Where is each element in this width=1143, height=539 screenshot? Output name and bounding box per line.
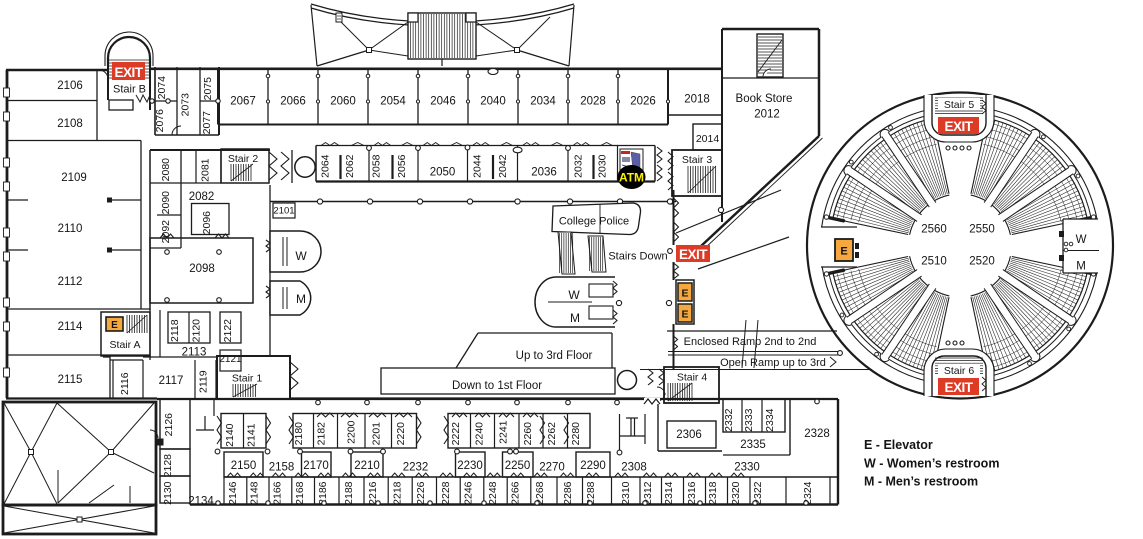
svg-text:2226: 2226 — [415, 481, 427, 505]
svg-text:2036: 2036 — [531, 167, 557, 179]
svg-text:Stair 1: Stair 1 — [232, 373, 263, 385]
svg-text:EXIT: EXIT — [944, 380, 973, 395]
svg-text:2248: 2248 — [487, 481, 499, 505]
svg-text:W: W — [1076, 234, 1087, 246]
svg-text:2073: 2073 — [180, 93, 192, 117]
svg-text:W - Women’s restroom: W - Women’s restroom — [864, 457, 999, 471]
svg-text:2220: 2220 — [395, 422, 407, 446]
svg-text:E: E — [840, 246, 847, 258]
svg-text:2032: 2032 — [573, 154, 585, 178]
svg-text:Stair 4: Stair 4 — [677, 372, 708, 384]
svg-text:E: E — [111, 320, 118, 331]
svg-text:2188: 2188 — [343, 481, 355, 505]
svg-text:2332: 2332 — [723, 408, 735, 432]
svg-text:2550: 2550 — [969, 224, 995, 236]
svg-text:2280: 2280 — [570, 422, 582, 446]
svg-text:2106: 2106 — [57, 80, 83, 92]
svg-text:2290: 2290 — [580, 460, 606, 472]
svg-text:2018: 2018 — [684, 94, 710, 106]
svg-text:2034: 2034 — [530, 96, 556, 108]
svg-text:2075: 2075 — [202, 77, 214, 101]
svg-text:2266: 2266 — [510, 481, 522, 505]
svg-text:2210: 2210 — [354, 460, 380, 472]
svg-text:2112: 2112 — [58, 276, 83, 288]
svg-text:2118: 2118 — [169, 319, 181, 342]
svg-text:E: E — [681, 288, 688, 300]
svg-text:2064: 2064 — [320, 154, 332, 178]
svg-text:2101: 2101 — [273, 206, 294, 217]
svg-text:2134: 2134 — [188, 496, 214, 508]
svg-text:Stairs Down: Stairs Down — [608, 251, 667, 263]
svg-text:Open Ramp up to 3rd: Open Ramp up to 3rd — [720, 357, 826, 369]
svg-text:2141: 2141 — [246, 423, 258, 447]
svg-text:M: M — [296, 292, 306, 306]
svg-text:2108: 2108 — [57, 118, 83, 130]
svg-text:2026: 2026 — [630, 96, 656, 108]
svg-text:2119: 2119 — [198, 370, 210, 393]
svg-text:2056: 2056 — [396, 154, 408, 178]
svg-text:2182: 2182 — [316, 422, 328, 446]
svg-text:2246: 2246 — [463, 481, 475, 505]
svg-text:EXIT: EXIT — [944, 119, 973, 134]
svg-text:2030: 2030 — [597, 154, 609, 178]
svg-text:2098: 2098 — [189, 263, 215, 275]
svg-text:2320: 2320 — [730, 481, 742, 505]
svg-text:M: M — [1076, 261, 1086, 273]
svg-text:2077: 2077 — [201, 111, 213, 135]
svg-text:2201: 2201 — [371, 422, 383, 446]
svg-text:2150: 2150 — [231, 460, 257, 472]
svg-text:2028: 2028 — [580, 96, 606, 108]
svg-text:2046: 2046 — [430, 96, 456, 108]
svg-text:2122: 2122 — [222, 319, 234, 343]
svg-text:2333: 2333 — [743, 408, 755, 432]
svg-text:2054: 2054 — [380, 96, 406, 108]
svg-text:2042: 2042 — [497, 154, 509, 178]
svg-text:2148: 2148 — [249, 481, 261, 505]
svg-text:W: W — [568, 288, 580, 302]
svg-text:2113: 2113 — [182, 347, 207, 359]
svg-text:2560: 2560 — [921, 224, 947, 236]
svg-text:2310: 2310 — [620, 481, 632, 505]
svg-text:2082: 2082 — [189, 191, 215, 203]
svg-text:2334: 2334 — [764, 408, 776, 432]
svg-text:2158: 2158 — [269, 462, 295, 474]
svg-text:2335: 2335 — [740, 439, 766, 451]
svg-text:EXIT: EXIT — [679, 247, 708, 262]
svg-text:2012: 2012 — [754, 109, 780, 121]
svg-text:Up to 3rd Floor: Up to 3rd Floor — [516, 350, 593, 362]
svg-text:2060: 2060 — [330, 96, 356, 108]
svg-text:2260: 2260 — [522, 422, 534, 446]
svg-text:2014: 2014 — [696, 133, 720, 145]
svg-text:2080: 2080 — [160, 158, 172, 182]
svg-text:2040: 2040 — [480, 96, 506, 108]
svg-text:2081: 2081 — [200, 158, 212, 182]
svg-text:2130: 2130 — [162, 481, 174, 505]
svg-text:2117: 2117 — [159, 375, 184, 387]
svg-text:2218: 2218 — [392, 481, 404, 505]
svg-text:2128: 2128 — [162, 454, 174, 478]
svg-text:Stair 3: Stair 3 — [682, 154, 713, 166]
svg-text:2114: 2114 — [58, 321, 83, 333]
svg-text:2228: 2228 — [440, 481, 452, 505]
svg-text:2314: 2314 — [663, 481, 675, 505]
svg-text:2146: 2146 — [227, 481, 239, 505]
svg-text:E: E — [681, 309, 688, 321]
svg-text:EXIT: EXIT — [114, 65, 143, 80]
svg-text:2240: 2240 — [474, 422, 486, 446]
svg-text:2308: 2308 — [621, 462, 647, 474]
svg-text:W: W — [295, 249, 307, 263]
svg-text:2170: 2170 — [303, 460, 329, 472]
svg-text:M - Men’s restroom: M - Men’s restroom — [864, 475, 978, 489]
svg-text:2044: 2044 — [472, 154, 484, 178]
svg-text:2180: 2180 — [293, 422, 305, 446]
svg-text:2241: 2241 — [498, 420, 510, 444]
svg-text:2262: 2262 — [546, 422, 558, 446]
svg-text:2120: 2120 — [191, 319, 203, 343]
svg-text:Down to 1st Floor: Down to 1st Floor — [452, 380, 542, 392]
svg-text:2109: 2109 — [61, 172, 87, 184]
svg-text:2270: 2270 — [539, 462, 565, 474]
svg-text:2200: 2200 — [346, 420, 358, 444]
svg-text:2116: 2116 — [119, 372, 131, 395]
svg-text:Stair B: Stair B — [113, 84, 146, 96]
svg-text:Stair 2: Stair 2 — [228, 153, 259, 165]
svg-text:2074: 2074 — [156, 76, 168, 100]
svg-text:2510: 2510 — [921, 256, 947, 268]
svg-text:2318: 2318 — [707, 481, 719, 505]
svg-text:Book Store: Book Store — [736, 93, 793, 105]
svg-text:Enclosed Ramp 2nd to 2nd: Enclosed Ramp 2nd to 2nd — [684, 336, 817, 348]
svg-text:ATM: ATM — [619, 171, 644, 185]
svg-text:2328: 2328 — [804, 428, 830, 440]
svg-text:2092: 2092 — [160, 220, 172, 244]
svg-text:E - Elevator: E - Elevator — [864, 438, 933, 452]
svg-text:Stair 5: Stair 5 — [944, 99, 975, 111]
svg-text:2096: 2096 — [201, 211, 213, 235]
svg-text:2050: 2050 — [430, 167, 456, 179]
svg-text:2168: 2168 — [294, 481, 306, 505]
svg-text:2222: 2222 — [450, 422, 462, 446]
svg-text:2058: 2058 — [371, 154, 383, 178]
svg-text:2110: 2110 — [58, 223, 83, 235]
svg-text:2115: 2115 — [58, 374, 83, 386]
svg-text:2067: 2067 — [230, 96, 256, 108]
svg-text:2076: 2076 — [154, 109, 166, 133]
svg-text:2166: 2166 — [272, 481, 284, 505]
svg-text:2066: 2066 — [280, 96, 306, 108]
svg-text:2126: 2126 — [163, 413, 175, 437]
svg-text:2140: 2140 — [224, 423, 236, 447]
svg-text:2090: 2090 — [160, 191, 172, 215]
svg-text:2306: 2306 — [676, 429, 702, 441]
svg-text:2286: 2286 — [562, 481, 574, 505]
svg-text:M: M — [570, 311, 580, 325]
svg-text:2520: 2520 — [969, 256, 995, 268]
svg-text:Stair 6: Stair 6 — [944, 365, 975, 377]
svg-text:2232: 2232 — [403, 462, 429, 474]
svg-text:2250: 2250 — [505, 460, 531, 472]
svg-text:College Police: College Police — [559, 216, 629, 228]
svg-text:2330: 2330 — [734, 462, 760, 474]
svg-text:2230: 2230 — [457, 460, 483, 472]
svg-text:2062: 2062 — [344, 154, 356, 178]
svg-text:2316: 2316 — [686, 481, 698, 505]
svg-text:Stair A: Stair A — [110, 339, 141, 351]
